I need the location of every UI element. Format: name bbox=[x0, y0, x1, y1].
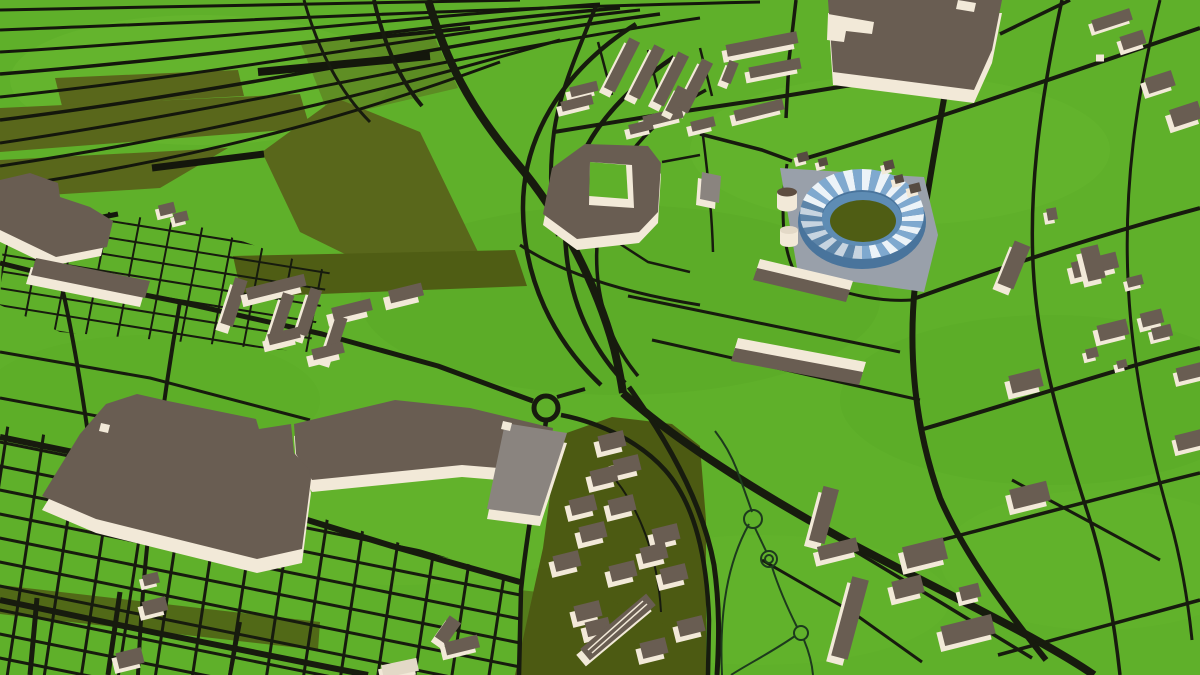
ring-building-courtyard-grass bbox=[589, 162, 628, 199]
building-roof bbox=[700, 172, 721, 203]
stadium-field bbox=[830, 200, 896, 242]
storage-tank bbox=[780, 226, 798, 247]
building-detail bbox=[1096, 55, 1104, 62]
viewport bbox=[0, 0, 1200, 675]
tank-bottom bbox=[780, 239, 798, 247]
tank-top bbox=[777, 188, 797, 197]
building-roof bbox=[1046, 207, 1058, 221]
city-3d-map-render[interactable] bbox=[0, 0, 1200, 675]
tank-top bbox=[780, 226, 798, 234]
stadium[interactable] bbox=[798, 169, 926, 269]
storage-tank bbox=[777, 188, 797, 212]
tank-bottom bbox=[777, 203, 797, 212]
building bbox=[828, 0, 1002, 103]
building bbox=[1096, 55, 1104, 62]
